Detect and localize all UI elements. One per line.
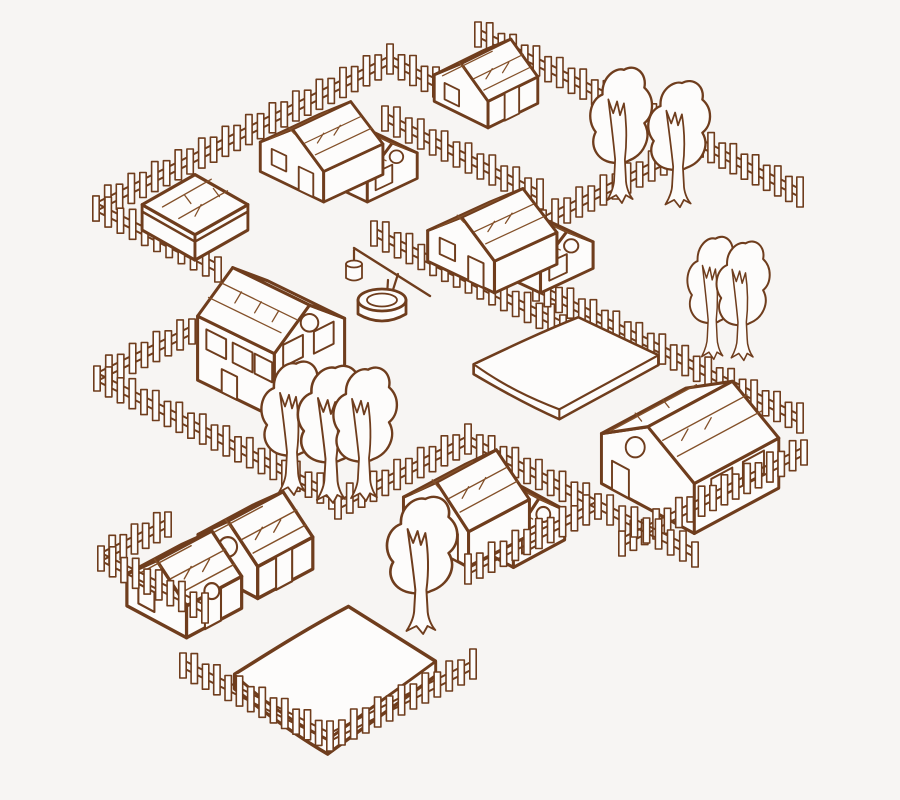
fence-picket (595, 494, 601, 519)
fence-picket (789, 441, 795, 471)
fence-picket (351, 709, 357, 739)
fence-picket (406, 459, 412, 484)
fence-picket (545, 57, 551, 82)
fence-picket (234, 125, 240, 150)
fence-picket (489, 155, 495, 185)
fence-picket (215, 257, 221, 282)
fence-picket (477, 553, 483, 578)
fence-picket (316, 79, 322, 109)
fence-picket (500, 541, 506, 566)
fence-picket (680, 531, 686, 561)
fence-picket (668, 530, 674, 555)
fence-picket (470, 649, 476, 679)
fence-picket (600, 175, 606, 205)
fence-picket (475, 22, 481, 47)
fence-picket (189, 319, 195, 344)
fence-picket (453, 435, 459, 460)
fence-picket (281, 102, 287, 127)
fence-picket (394, 460, 400, 490)
fence-picket (744, 463, 750, 493)
fence-picket (164, 401, 170, 426)
fence-picket (188, 413, 194, 438)
fence-picket (524, 292, 530, 322)
fence-picket (406, 234, 412, 264)
fence-picket (190, 592, 196, 617)
fence-picket (659, 334, 665, 364)
fence-picket (129, 379, 135, 409)
village-svg (0, 0, 900, 800)
fence-picket (121, 558, 127, 583)
fence-picket (140, 173, 146, 198)
fence-picket (465, 424, 471, 454)
fence-picket (141, 343, 147, 368)
fence-picket (382, 470, 388, 495)
fence-picket (778, 451, 784, 476)
fence-picket (371, 221, 377, 246)
fence-picket (687, 497, 693, 522)
fence-picket (129, 209, 135, 239)
fence-picket (394, 107, 400, 137)
fence-picket (258, 449, 264, 474)
fence-picket (682, 346, 688, 376)
fence-picket (98, 546, 104, 571)
fence-picket (143, 523, 149, 548)
fence-picket (106, 367, 112, 397)
fence-picket (556, 288, 562, 313)
fence-picket (446, 661, 452, 691)
fence-picket (536, 460, 542, 490)
fence-picket (163, 161, 169, 186)
fence-picket (352, 67, 358, 92)
fence-picket (177, 320, 183, 350)
fence-picket (441, 131, 447, 161)
fence-picket (304, 710, 310, 740)
fence-picket (382, 106, 388, 131)
fence-picket (655, 519, 661, 549)
fence-picket (202, 664, 208, 689)
fence-picket (488, 542, 494, 572)
fence-picket (797, 177, 803, 207)
fence-picket (676, 498, 682, 528)
fence-picket (568, 68, 574, 93)
fence-picket (259, 687, 265, 717)
fence-picket (418, 119, 424, 149)
fence-picket (418, 448, 424, 478)
fence-picket (410, 684, 416, 709)
fence-picket (730, 144, 736, 174)
fence-picket (387, 44, 393, 74)
fence-picket (636, 162, 642, 187)
fence-picket (801, 440, 807, 465)
fence-picket (293, 709, 299, 734)
fence-picket (536, 303, 542, 328)
fence-picket (708, 133, 714, 163)
fence-picket (434, 672, 440, 697)
fence-picket (564, 198, 570, 223)
fence-picket (305, 472, 311, 497)
fence-picket (422, 673, 428, 703)
fence-picket (453, 142, 459, 167)
fence-picket (210, 137, 216, 162)
fence-picket (557, 58, 563, 88)
fence-picket (762, 391, 768, 416)
fence-picket (643, 518, 649, 543)
fence-picket (524, 530, 530, 555)
fence-picket (200, 414, 206, 444)
fence-picket (559, 507, 565, 537)
fence-picket (154, 513, 160, 543)
fence-picket (619, 531, 625, 556)
fence-picket (607, 495, 613, 525)
fence-picket (559, 471, 565, 501)
fence-picket (247, 438, 253, 468)
fence-picket (774, 392, 780, 422)
fence-picket (797, 403, 803, 433)
fence-picket (94, 366, 100, 391)
fence-picket (235, 437, 241, 462)
fence-picket (225, 676, 231, 701)
fence-picket (144, 569, 150, 594)
fence-picket (465, 554, 471, 584)
fence-picket (120, 535, 126, 560)
fence-picket (785, 402, 791, 427)
fence-picket (176, 402, 182, 432)
fence-picket (705, 357, 711, 387)
fence-picket (363, 56, 369, 86)
fence-picket (548, 518, 554, 543)
fence-picket (406, 118, 412, 143)
fence-picket (571, 482, 577, 507)
fence-picket (117, 378, 123, 403)
fence-picket (588, 186, 594, 211)
fence-picket (214, 665, 220, 695)
fence-picket (571, 506, 577, 531)
fence-picket (694, 356, 700, 381)
fence-picket (222, 126, 228, 156)
fence-picket (764, 165, 770, 190)
fence-picket (524, 459, 530, 484)
fence-picket (340, 68, 346, 98)
fence-picket (109, 547, 115, 577)
fence-picket (282, 699, 288, 729)
fence-picket (305, 90, 311, 115)
fence-picket (152, 162, 158, 192)
fence-picket (129, 343, 135, 373)
fence-picket (248, 687, 254, 712)
fence-picket (246, 115, 252, 145)
fence-picket (180, 653, 186, 678)
fence-picket (153, 391, 159, 421)
fence-picket (398, 685, 404, 715)
fence-picket (191, 654, 197, 684)
fence-picket (211, 425, 217, 450)
fence-picket (93, 196, 99, 221)
fence-picket (383, 222, 389, 252)
fence-picket (755, 463, 761, 488)
fence-picket (619, 506, 625, 531)
fence-picket (165, 512, 171, 537)
fence-picket (116, 184, 122, 209)
fence-picket (567, 288, 573, 318)
fence-picket (105, 197, 111, 227)
fence-picket (698, 486, 704, 516)
fence-picket (293, 91, 299, 121)
fence-picket (375, 697, 381, 727)
fence-picket (421, 66, 427, 91)
fence-picket (477, 154, 483, 179)
fence-picket (167, 581, 173, 606)
fence-picket (410, 56, 416, 86)
fence-picket (257, 114, 263, 139)
fence-picket (786, 176, 792, 201)
fence-picket (339, 720, 345, 745)
fence-picket (752, 155, 758, 185)
fence-picket (430, 130, 436, 155)
fence-picket (576, 187, 582, 217)
fence-picket (187, 149, 193, 174)
fence-picket (465, 143, 471, 173)
fence-picket (236, 676, 242, 706)
fence-picket (394, 233, 400, 258)
fence-picket (199, 138, 205, 168)
fence-picket (141, 390, 147, 415)
fence-picket (767, 452, 773, 482)
fence-picket (513, 292, 519, 317)
fence-picket (156, 570, 162, 600)
fence-picket (501, 166, 507, 191)
fence-picket (583, 495, 589, 525)
fence-picket (692, 542, 698, 567)
fence-picket (375, 55, 381, 80)
fence-picket (270, 698, 276, 723)
fence-picket (580, 69, 586, 99)
fence-picket (327, 721, 333, 751)
fence-picket (328, 78, 334, 103)
fence-picket (398, 55, 404, 80)
fence-picket (537, 179, 543, 209)
fence-picket (710, 486, 716, 511)
fence-picket (671, 345, 677, 370)
fence-picket (386, 696, 392, 721)
fence-picket (269, 103, 275, 133)
fence-picket (223, 426, 229, 456)
fence-picket (128, 173, 134, 203)
fence-picket (741, 154, 747, 179)
fence-picket (458, 660, 464, 685)
fence-picket (631, 507, 637, 537)
fence-picket (721, 475, 727, 505)
fence-picket (316, 720, 322, 745)
fence-picket (179, 581, 185, 611)
fence-picket (175, 150, 181, 180)
fence-picket (775, 166, 781, 196)
fence-picket (118, 354, 124, 379)
fence-picket (131, 524, 137, 554)
fence-picket (441, 436, 447, 466)
fence-picket (418, 245, 424, 270)
fence-picket (363, 708, 369, 733)
fence-picket (133, 558, 139, 588)
village-illustration (0, 0, 900, 800)
fence-picket (548, 470, 554, 495)
fence-picket (429, 447, 435, 472)
fence-picket (153, 332, 159, 362)
fence-picket (117, 208, 123, 233)
fence-picket (536, 519, 542, 549)
fence-picket (165, 331, 171, 356)
fence-picket (733, 474, 739, 499)
fence-picket (719, 143, 725, 168)
fence-picket (202, 593, 208, 623)
fence-picket (512, 530, 518, 560)
